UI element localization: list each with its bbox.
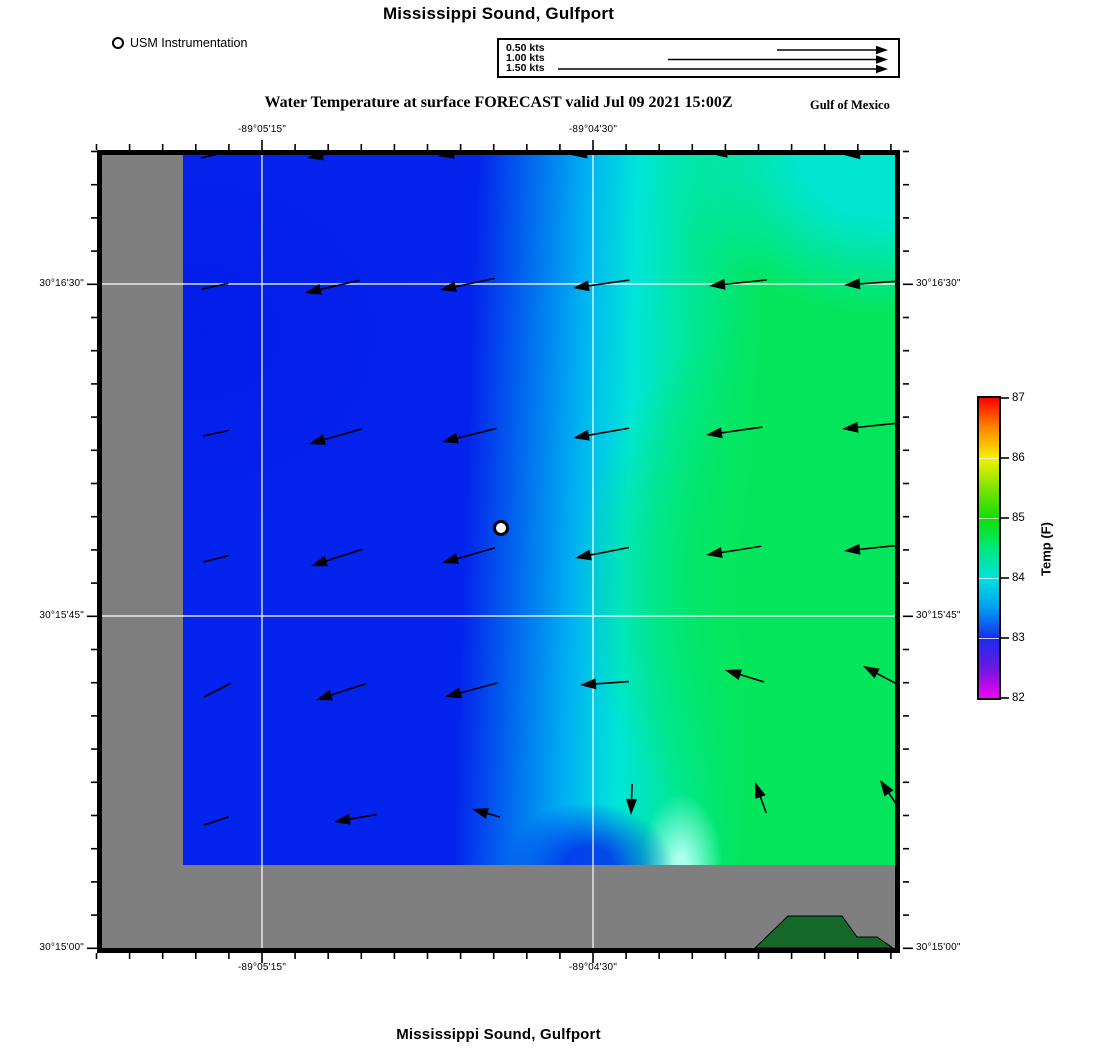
current-vector <box>204 683 231 697</box>
land-polygon <box>755 916 893 948</box>
current-vector-head <box>706 427 723 438</box>
colorbar-tick-label: 87 <box>1012 392 1025 404</box>
y-axis-label-right: 30°15'00" <box>916 942 986 953</box>
velocity-scale-arrow-head <box>876 65 888 73</box>
current-vector-head <box>305 284 322 295</box>
map-overlay <box>102 155 895 948</box>
current-vector <box>316 155 361 156</box>
current-vector-head <box>438 155 455 159</box>
colorbar-separator <box>979 638 999 639</box>
current-vector-head <box>575 550 592 561</box>
current-vector <box>449 278 494 288</box>
current-vector <box>451 428 496 439</box>
current-vector-head <box>442 553 459 564</box>
colorbar-tick-label: 84 <box>1012 572 1025 584</box>
colorbar-tick-label: 86 <box>1012 452 1025 464</box>
velocity-scale-arrow-head <box>876 46 888 54</box>
basin-label: Gulf of Mexico <box>810 98 890 113</box>
y-axis-label-right: 30°15'45" <box>916 610 986 621</box>
y-axis-label-left: 30°15'00" <box>18 942 84 953</box>
station-legend: USM Instrumentation <box>112 36 247 50</box>
y-axis-label-left: 30°16'30" <box>18 278 84 289</box>
map-plot <box>97 150 900 953</box>
current-vector-head <box>755 782 766 799</box>
current-vector-head <box>573 280 590 291</box>
station-legend-label: USM Instrumentation <box>130 36 247 50</box>
station-marker <box>495 522 508 535</box>
current-vector-head <box>311 556 328 566</box>
current-vector-head <box>706 547 723 558</box>
y-axis-label-right: 30°16'30" <box>916 278 986 289</box>
current-vector-head <box>880 780 894 796</box>
current-vector-head <box>442 433 459 444</box>
colorbar-tick-label: 83 <box>1012 632 1025 644</box>
current-vector-head <box>472 808 489 819</box>
current-vector-head <box>711 155 727 158</box>
current-vector-head <box>571 155 588 159</box>
current-vector-head <box>863 666 880 678</box>
footer-title: Mississippi Sound, Gulfport <box>97 1026 900 1043</box>
x-axis-label-bottom: -89°05'15" <box>202 962 322 973</box>
velocity-scale-arrow-head <box>876 55 888 63</box>
current-vector-head <box>626 799 637 815</box>
current-vector <box>582 428 629 436</box>
current-vector <box>716 427 763 434</box>
x-axis-label-top: -89°05'15" <box>202 124 322 135</box>
current-vector <box>318 429 362 442</box>
current-vector <box>584 548 629 557</box>
current-vector <box>454 683 498 695</box>
current-vector-head <box>334 814 351 825</box>
current-vector <box>201 155 228 158</box>
current-vector-head <box>309 434 326 445</box>
colorbar-tick-label: 85 <box>1012 512 1025 524</box>
current-vector-head <box>844 155 860 159</box>
station-marker-icon <box>112 37 124 49</box>
current-vector-head <box>316 690 333 700</box>
x-axis-label-bottom: -89°04'30" <box>533 962 653 973</box>
velocity-scale-box: 0.50 kts 1.00 kts 1.50 kts <box>497 38 900 78</box>
velocity-scale-arrows <box>499 40 898 76</box>
current-vector-head <box>440 281 457 292</box>
current-vector <box>852 423 895 428</box>
current-vector-head <box>580 678 596 689</box>
current-vector-head <box>844 544 860 555</box>
current-vector-head <box>842 422 858 433</box>
current-vector-head <box>307 155 324 160</box>
current-vector-head <box>445 688 462 699</box>
page-title: Mississippi Sound, Gulfport <box>97 4 900 24</box>
colorbar-separator <box>979 518 999 519</box>
current-vector-head <box>573 430 590 441</box>
current-vector <box>204 817 229 825</box>
y-axis-label-left: 30°15'45" <box>18 610 84 621</box>
current-vector <box>451 548 495 561</box>
current-vector <box>320 549 362 563</box>
colorbar-separator <box>979 578 999 579</box>
current-vector <box>203 556 228 562</box>
x-axis-label-top: -89°04'30" <box>533 124 653 135</box>
forecast-subtitle: Water Temperature at surface FORECAST va… <box>97 94 900 112</box>
current-vector-head <box>725 669 742 680</box>
current-vector <box>314 280 359 290</box>
colorbar-separator <box>979 458 999 459</box>
current-vector <box>203 431 228 436</box>
current-vector <box>325 684 366 697</box>
colorbar-title: Temp (F) <box>1039 522 1054 576</box>
colorbar-tick-label: 82 <box>1012 692 1025 704</box>
colorbar <box>977 396 1001 700</box>
current-vector <box>715 546 761 553</box>
